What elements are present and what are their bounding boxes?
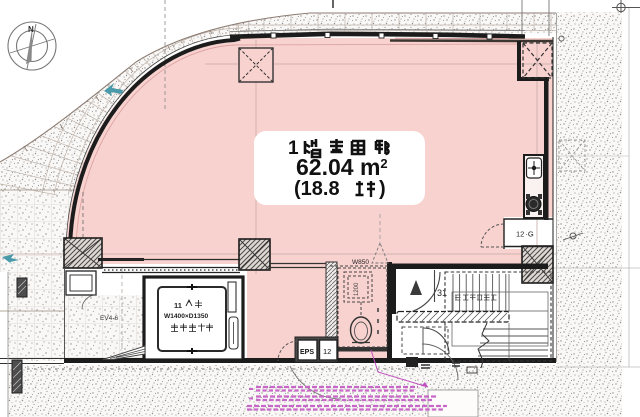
svg-text:EV4-6: EV4-6 — [100, 315, 118, 322]
svg-text:W850: W850 — [352, 259, 369, 266]
svg-text:(18.8: (18.8 — [294, 178, 340, 200]
svg-text:12·G: 12·G — [516, 230, 534, 239]
svg-text:EPS: EPS — [300, 349, 314, 356]
svg-text:62.04 m2: 62.04 m2 — [296, 154, 388, 180]
svg-text:1200: 1200 — [354, 282, 360, 296]
svg-text:W1400×D1350: W1400×D1350 — [164, 313, 209, 320]
svg-text:12: 12 — [323, 347, 331, 356]
svg-text:N: N — [28, 25, 34, 34]
svg-text:): ) — [379, 178, 386, 200]
svg-text:11: 11 — [174, 301, 182, 310]
